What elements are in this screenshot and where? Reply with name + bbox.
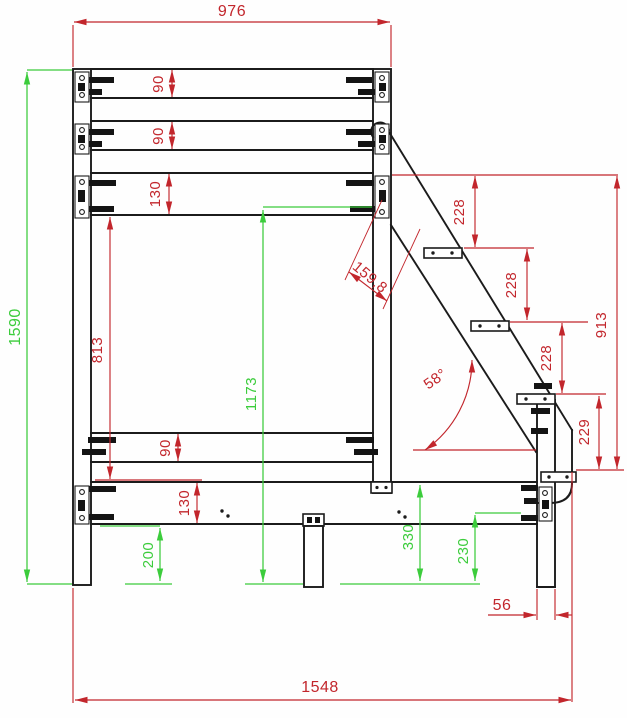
dim-lower-rail-2-label: 130 (176, 490, 193, 517)
dim-1173-label: 1173 (243, 377, 260, 411)
stringer-foot-plate (541, 472, 576, 482)
dim-230-label: 230 (455, 538, 472, 565)
dim-top-rail-3-label: 130 (147, 181, 164, 208)
dim-top-rail-1-label: 90 (150, 75, 167, 93)
dim-813-label: 813 (89, 337, 106, 364)
tread-2 (471, 321, 509, 331)
stair-stringer (371, 123, 572, 503)
dim-1590-label: 1590 (7, 308, 24, 346)
dim-913-label: 913 (593, 312, 610, 339)
loft-bed-stairs-drawing: 976 90 90 130 813 159,8 228 228 228 913 … (0, 0, 627, 718)
dim-angle-label: 58° (421, 365, 451, 393)
dim-lower-rail-1-label: 90 (157, 439, 174, 457)
lower-rail-upper (91, 433, 373, 462)
fasteners (75, 72, 552, 524)
dim-228-2-label: 228 (503, 272, 520, 299)
center-leg-bracket (303, 514, 324, 526)
guard-rail-3 (91, 173, 373, 215)
right-post-brackets (375, 72, 389, 218)
bed-post-foot-plate (371, 482, 392, 493)
dim-976-label: 976 (218, 3, 246, 20)
dim-top-rail-2-label: 90 (150, 127, 167, 145)
guard-rail-1 (91, 69, 373, 98)
tread-3 (517, 394, 555, 404)
dim-200-label: 200 (140, 542, 157, 569)
dim-330-label: 330 (400, 524, 417, 551)
dim-56-label: 56 (493, 597, 512, 614)
dim-1548-label: 1548 (301, 679, 339, 696)
center-leg (303, 514, 324, 587)
bed-structure (73, 69, 537, 587)
dim-229-label: 229 (576, 419, 593, 446)
technical-drawing-canvas: 976 90 90 130 813 159,8 228 228 228 913 … (0, 0, 627, 718)
red-dimensions: 976 90 90 130 813 159,8 228 228 228 913 … (73, 3, 624, 703)
dim-228-3-label: 228 (538, 345, 555, 372)
dim-228-1-label: 228 (451, 199, 468, 226)
guard-rail-2 (91, 121, 373, 150)
tread-1 (424, 248, 462, 258)
